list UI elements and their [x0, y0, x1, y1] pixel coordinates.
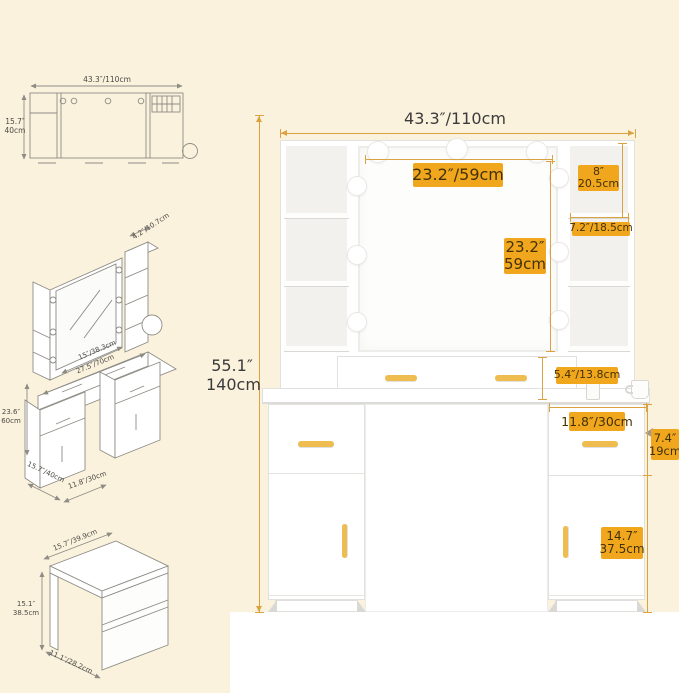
- arrow-left: [281, 130, 287, 136]
- stool-width-label: 15.7″/39.9cm: [52, 528, 99, 553]
- cabinet-height-dimension-line: [647, 404, 648, 612]
- product-dimension-diagram: { "colors": { "background": "#fbf2de", "…: [0, 0, 679, 693]
- desk-drawer-handle: [495, 375, 527, 381]
- badge-cabinet-width: 11.8″/30cm: [569, 412, 625, 431]
- badge-desk-drawer-height: 5.4″/13.8cm: [556, 367, 618, 384]
- left-shelf-board-2: [284, 281, 349, 287]
- mirror-width-value: 23.2″/59cm: [412, 166, 504, 184]
- end-tick: [255, 612, 264, 613]
- badge-shelf-height: 8″ 20.5cm: [578, 165, 619, 191]
- mug: [631, 380, 649, 399]
- badge-mirror-height: 23.2″ 59cm: [504, 238, 546, 274]
- left-cabinet-base-shadow: [357, 600, 366, 612]
- right-cabinet-bottom-rail: [549, 595, 644, 596]
- iso-shelf-column: [125, 242, 148, 352]
- iso-height-cm-label: 60cm: [1, 417, 21, 425]
- right-cabinet-base-shadow: [548, 600, 557, 612]
- iso-magnifying-mirror: [142, 315, 162, 335]
- topview-width-label: 43.3″/110cm: [83, 75, 131, 84]
- mirror-height-dimension-line: [550, 161, 551, 351]
- badge-shelf-depth: 7.2″/18.5cm: [572, 222, 630, 236]
- right-shelf-board-3: [568, 346, 630, 352]
- end-tick: [643, 404, 652, 405]
- end-tick: [546, 161, 555, 162]
- light-bulb: [347, 176, 367, 196]
- light-bulb: [549, 168, 569, 188]
- iso-shelf-depth-label: 4.2″/10.7cm: [131, 211, 171, 241]
- end-tick: [255, 115, 264, 116]
- cabinet-drawer-height-cm: 19cm: [649, 445, 679, 458]
- shelf-height-dimension-line: [622, 143, 623, 217]
- right-shelf-board-1: [568, 213, 630, 219]
- left-cabinet-door-handle: [342, 524, 347, 558]
- cabinet-width-dimension-line: [549, 407, 646, 408]
- left-cabinet-drawer-divider: [269, 473, 364, 474]
- end-tick: [570, 213, 571, 222]
- overall-height-cm: 140cm: [206, 375, 261, 394]
- badge-cabinet-drawer-height: 7.4″ 19cm: [651, 429, 679, 460]
- stool-height-in-label: 15.1″: [17, 600, 36, 608]
- right-shelf-board-2: [568, 281, 630, 287]
- shelf-height-cm: 20.5cm: [578, 178, 619, 190]
- mirror-height-cm: 59cm: [504, 256, 546, 273]
- light-bulb: [549, 242, 569, 262]
- left-cabinet: [268, 404, 365, 600]
- end-tick: [538, 399, 547, 400]
- overall-width-label: 43.3″/110cm: [385, 109, 525, 128]
- left-cabinet-base: [275, 600, 358, 612]
- end-tick: [618, 143, 627, 144]
- right-cabinet-base: [555, 600, 638, 612]
- cabinet-door-height-in: 14.7″: [606, 530, 637, 543]
- footwell-back-panel: [365, 404, 548, 612]
- right-cabinet-drawer-handle: [582, 441, 618, 447]
- light-bulb: [549, 310, 569, 330]
- shelf-depth-dimension-line: [570, 217, 628, 218]
- end-tick: [549, 403, 550, 412]
- light-bulb: [347, 312, 367, 332]
- topview-depth-cm-label: 40cm: [5, 126, 26, 135]
- end-tick: [546, 351, 555, 352]
- right-cabinet-drawer-divider: [549, 475, 644, 476]
- thumbnail-isometric-view: 4.2″/10.7cm 15″/38.3cm 27.5″/70cm 23.6″ …: [0, 200, 225, 510]
- end-tick: [365, 155, 366, 164]
- end-tick: [538, 357, 547, 358]
- end-tick: [635, 129, 636, 138]
- topview-depth-in-label: 15.7″: [5, 117, 25, 126]
- thumbnail-top-view: 43.3″/110cm 15.7″ 40cm: [0, 64, 215, 174]
- left-cabinet-bottom-rail: [269, 595, 364, 596]
- mirror-width-dimension-line: [365, 159, 552, 160]
- overall-width-dimension-line: [281, 133, 634, 134]
- left-shelf-board-3: [284, 346, 349, 352]
- end-tick: [628, 213, 629, 222]
- overall-height-dimension-line: [259, 116, 260, 612]
- overall-height-in: 55.1″: [211, 356, 253, 375]
- left-shelf-tower-interior: [286, 146, 347, 352]
- arrow-right: [628, 130, 634, 136]
- left-shelf-board-1: [284, 213, 349, 219]
- cabinet-door-height-cm: 37.5cm: [600, 543, 645, 556]
- cabinet-width-value: 11.8″/30cm: [561, 415, 633, 429]
- magnifying-mirror-top-view: [183, 144, 198, 159]
- iso-height-in-label: 23.6″: [2, 408, 21, 416]
- end-tick: [552, 155, 553, 164]
- stool-height-cm-label: 38.5cm: [13, 609, 39, 617]
- left-cabinet-drawer-handle: [298, 441, 334, 447]
- right-cabinet-door-handle: [563, 526, 568, 558]
- cabinet-drawer-height-in: 7.4″: [654, 432, 677, 445]
- right-cabinet: [548, 404, 645, 600]
- light-bulb: [446, 138, 468, 160]
- desk-drawer-handle: [385, 375, 417, 381]
- mid-tick: [643, 475, 652, 476]
- desk-drawer-height-value: 5.4″/13.8cm: [554, 369, 621, 381]
- badge-mirror-width: 23.2″/59cm: [413, 163, 503, 187]
- arrow-up: [256, 116, 262, 122]
- light-bulb: [347, 245, 367, 265]
- desk-drawer-height-dimension-line: [542, 357, 543, 399]
- overall-height-label: 55.1″ 140cm: [206, 356, 258, 394]
- end-tick: [280, 129, 281, 138]
- right-cabinet-base-shadow: [637, 600, 646, 612]
- photo-floor-background: [230, 612, 679, 693]
- end-tick: [643, 612, 652, 613]
- mirror-height-in: 23.2″: [505, 239, 544, 256]
- thumbnail-stool: 15.7″/39.9cm 15.1″ 38.5cm 11.1″/28.2cm: [0, 505, 215, 693]
- stool-depth-label: 11.1″/28.2cm: [48, 649, 94, 676]
- badge-cabinet-door-height: 14.7″ 37.5cm: [601, 527, 643, 559]
- shelf-depth-value: 7.2″/18.5cm: [569, 223, 633, 235]
- left-cabinet-base-shadow: [268, 600, 277, 612]
